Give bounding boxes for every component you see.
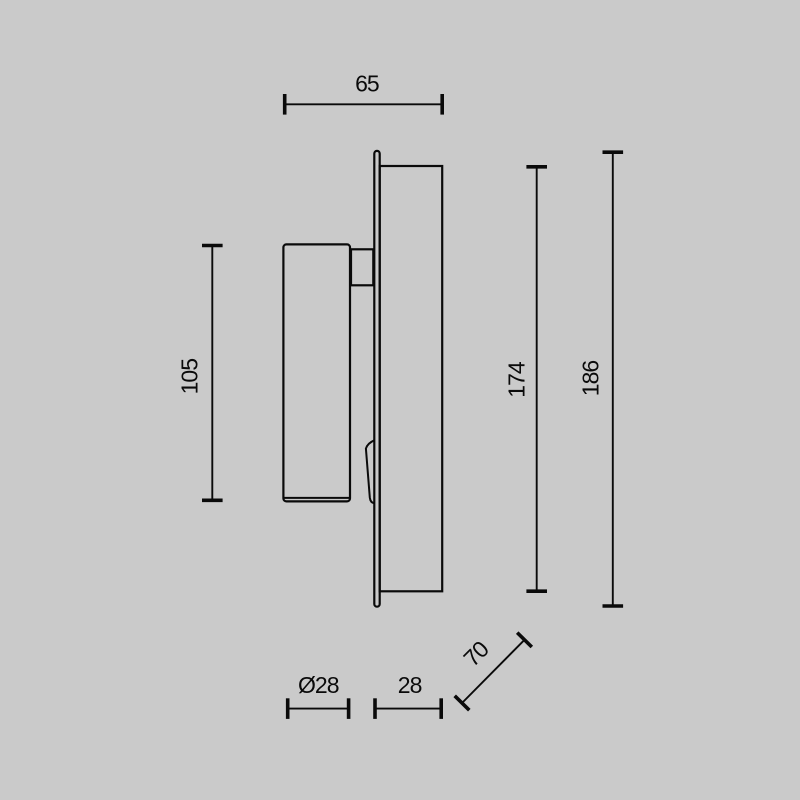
svg-text:186: 186 (577, 361, 603, 397)
svg-text:65: 65 (355, 71, 379, 97)
svg-text:28: 28 (398, 672, 422, 698)
svg-text:Ø28: Ø28 (298, 672, 339, 698)
svg-text:105: 105 (176, 359, 202, 395)
svg-text:70: 70 (458, 636, 493, 671)
svg-text:174: 174 (504, 361, 530, 398)
